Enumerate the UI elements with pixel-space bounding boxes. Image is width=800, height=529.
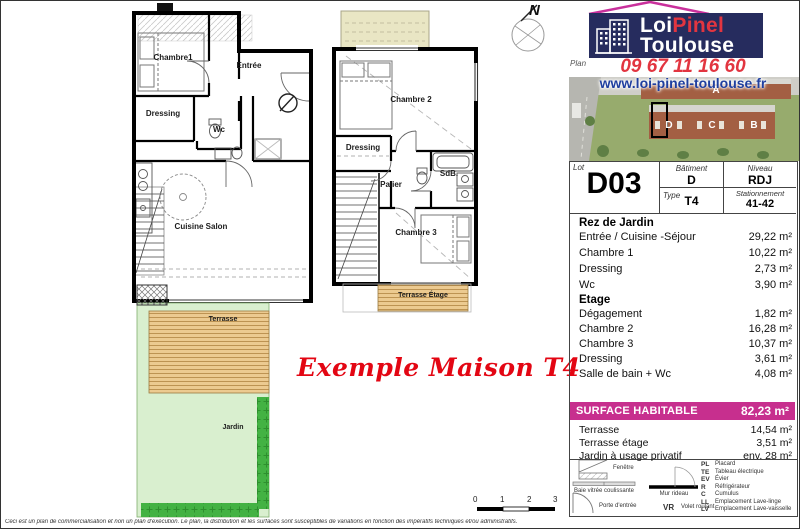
abbr-label: Évier [715,476,729,483]
plan-caption: Exemple Maison T4 [297,353,580,382]
etage-section-title: Etage [579,294,610,306]
surface-row: Chambre 110,22 m² [579,247,792,259]
room-label-dressing-rdj: Dressing [146,109,180,118]
abbr-label: Emplacement Lave-vaisselle [715,506,791,513]
scale-bar [477,507,555,511]
row-value: 3,90 m² [755,279,792,291]
surface-habitable-bar: SURFACE HABITABLE 82,23 m² [570,402,795,420]
row-label: Dégagement [579,308,642,320]
abbr: C [701,491,715,498]
surface-row: Chambre 310,37 m² [579,338,792,350]
row-value: 29,22 m² [749,231,792,243]
row-label: Chambre 2 [579,323,633,335]
row-label: Dressing [579,353,622,365]
legend-vr-abbr: VR [663,503,674,512]
scale-tick-0: 0 [473,495,477,504]
upper-floor-footprint [334,49,476,284]
annex-row: Terrasse14,54 m² [579,424,792,436]
lot-number: D03 [569,167,659,201]
legend-abbr-row: TETableau électrique [701,469,793,476]
row-label: Wc [579,279,595,291]
legend-abbr-row: LVEmplacement Lave-vaisselle [701,506,793,513]
surface-row: Dégagement1,82 m² [579,308,792,320]
legend-abbr-row: PLPlacard [701,461,793,468]
abbr-label: Tableau électrique [715,469,764,476]
annex-row: Terrasse étage3,51 m² [579,437,792,449]
row-value: 16,28 m² [749,323,792,335]
hedge-right [257,397,269,509]
logo-word-toulouse: Toulouse [640,36,734,56]
abbr-label: Placard [715,461,735,468]
room-label-wc: Wc [213,125,225,134]
ground-floor-plan [134,3,311,517]
table-hline-bottom [569,213,796,214]
row-value: 3,51 m² [756,437,792,449]
row-value: 14,54 m² [751,424,792,436]
row-label: Terrasse étage [579,437,648,449]
row-label: Salle de bain + Wc [579,368,671,380]
abbr-label: Emplacement Lave-linge [715,499,781,506]
row-label: Terrasse [579,424,619,436]
abbr-label: Réfrigérateur [715,484,750,491]
brand-logo-text: LoiPinel Toulouse [640,16,734,56]
room-label-terrasse-etage: Terrasse Étage [398,292,448,299]
surface-row: Dressing2,73 m² [579,263,792,275]
website-url: www.loi-pinel-toulouse.fr [567,75,799,91]
surface-habitable-label: SURFACE HABITABLE [576,405,698,417]
table-hline-mid [659,187,796,188]
row-value: 3,61 m² [755,353,792,365]
batiment-value: D [660,173,723,187]
surface-habitable-value: 82,23 m² [741,404,789,418]
row-label: Dressing [579,263,622,275]
compass-north-label: N [529,2,540,19]
upper-roof-terrace [341,11,429,49]
hedge-bottom [141,503,259,517]
room-label-terrasse: Terrasse [209,316,238,323]
legend-abbr-row: RRéfrigérateur [701,484,793,491]
legend-porte-label: Porte d'entrée [599,503,637,509]
building-label-d: D [665,120,672,131]
room-label-cuisine-salon: Cuisine Salon [175,222,228,231]
plan-sheet: A D C B Chambre1 Entrée D [0,0,800,529]
abbr: PL [701,461,715,468]
upper-floor-plan [334,11,480,312]
surface-row: Entrée / Cuisine -Séjour29,22 m² [579,231,792,243]
surface-row: Wc3,90 m² [579,279,792,291]
row-value: 2,73 m² [755,263,792,275]
row-value: 10,37 m² [749,338,792,350]
room-label-sdb: SdB. [440,169,458,178]
row-value: 1,82 m² [755,308,792,320]
room-label-chambre3: Chambre 3 [395,228,436,237]
legend-abbr-row: LLEmplacement Lave-linge [701,499,793,506]
batiment-label: Bâtiment [660,164,723,173]
terrasse-area [149,311,269,393]
chimney [157,3,173,12]
abbr: LL [701,499,715,506]
room-label-jardin: Jardin [222,424,243,431]
exterior-storage [137,285,167,305]
buildings-icon [594,17,636,55]
surface-row: Salle de bain + Wc4,08 m² [579,368,792,380]
brand-logo: LoiPinel Toulouse [589,13,763,58]
row-value: 10,22 m² [749,247,792,259]
niveau-value: RDJ [724,173,796,187]
building-label-c: C [708,120,715,131]
row-label: Chambre 1 [579,247,633,259]
scale-tick-3: 3 [553,495,557,504]
row-value: 4,08 m² [755,368,792,380]
stationnement-label: Stationnement [724,189,796,198]
legend-mur-label: Mur rideau [651,491,697,497]
abbr-label: Cumulus [715,491,739,498]
room-label-dressing-etage: Dressing [346,143,380,152]
legend-fenetre-label: Fenêtre [613,465,634,471]
plan-word-label: Plan [570,59,586,68]
room-label-palier: Palier [380,180,402,189]
building-label-b: B [750,120,757,131]
abbr: R [701,484,715,491]
vehicle [572,103,581,118]
niveau-label: Niveau [724,164,796,173]
surface-row: Dressing3,61 m² [579,353,792,365]
roof-slope-hatch [138,15,252,41]
legend-abbr-row: EVÉvier [701,476,793,483]
type-value: T4 [660,194,723,208]
room-label-entree: Entrée [237,61,262,70]
legend-abbr-row: CCumulus [701,491,793,498]
abbr: LV [701,506,715,513]
row-label: Entrée / Cuisine -Séjour [579,231,696,243]
abbr: EV [701,476,715,483]
row-label: Chambre 3 [579,338,633,350]
room-label-chambre1: Chambre1 [153,53,192,62]
building-d [649,105,697,139]
scale-tick-2: 2 [527,495,531,504]
room-label-chambre2: Chambre 2 [390,95,431,104]
surface-row: Chambre 216,28 m² [579,323,792,335]
rdj-section-title: Rez de Jardin [579,217,654,229]
scale-tick-1: 1 [500,495,504,504]
legend-baie-label: Baie vitrée coulissante [571,488,637,494]
abbr: TE [701,469,715,476]
disclaimer-text: Ceci est un plan de commercialisation et… [5,519,565,525]
stationnement-value: 41-42 [724,198,796,210]
